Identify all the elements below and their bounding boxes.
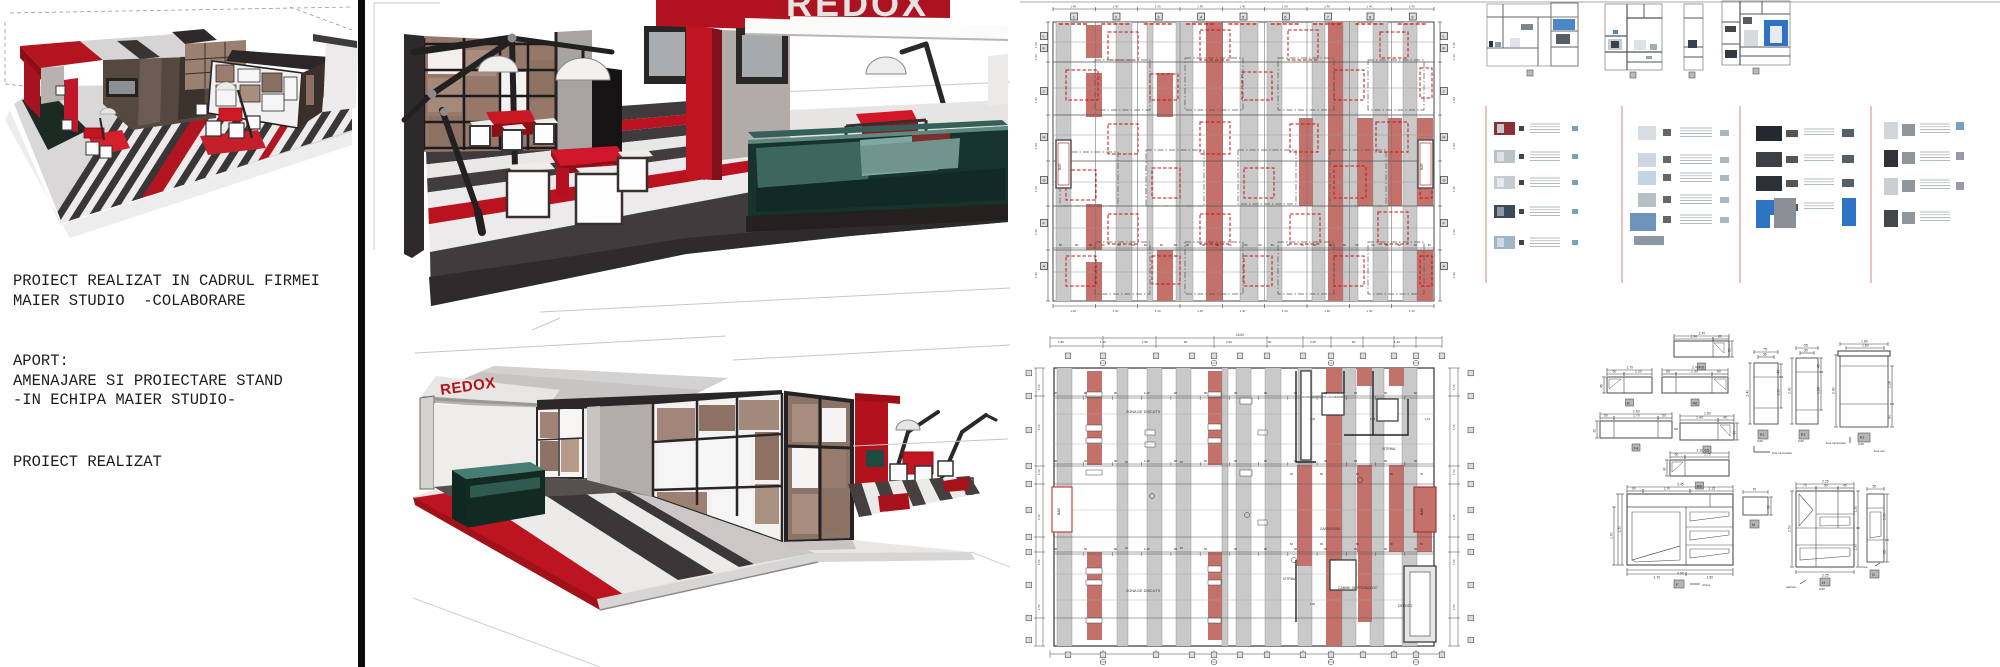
svg-text:1.30: 1.30 <box>1854 544 1858 551</box>
svg-text:1.50: 1.50 <box>1452 604 1456 610</box>
svg-text:1.20: 1.20 <box>1144 459 1150 463</box>
svg-text:30: 30 <box>1234 547 1238 551</box>
svg-text:F4: F4 <box>1634 446 1639 451</box>
svg-text:1.50: 1.50 <box>1058 340 1064 344</box>
svg-text:30: 30 <box>1054 459 1058 463</box>
svg-text:90: 90 <box>1202 243 1206 247</box>
svg-text:60: 60 <box>1089 243 1093 247</box>
svg-text:30: 30 <box>1324 547 1328 551</box>
svg-text:1.15: 1.15 <box>1709 487 1716 491</box>
svg-text:BAR: BAR <box>1420 507 1424 515</box>
svg-text:1.50: 1.50 <box>1034 143 1038 149</box>
svg-text:1.50: 1.50 <box>1452 42 1456 48</box>
svg-text:1.10: 1.10 <box>1394 340 1400 344</box>
svg-text:1.28: 1.28 <box>1888 381 1892 388</box>
svg-text:30: 30 <box>1804 349 1808 353</box>
svg-text:60: 60 <box>1313 243 1317 247</box>
svg-text:70: 70 <box>1753 488 1757 492</box>
svg-text:50: 50 <box>1662 414 1666 418</box>
svg-text:1.50: 1.50 <box>1034 54 1038 60</box>
svg-text:1.40: 1.40 <box>1324 309 1330 313</box>
svg-text:1.40: 1.40 <box>1367 5 1373 9</box>
svg-text:1.50: 1.50 <box>1452 186 1456 192</box>
svg-text:GARDEROBA: GARDEROBA <box>1320 527 1341 531</box>
svg-text:60: 60 <box>1144 243 1148 247</box>
svg-text:vitrina: vitrina <box>1860 565 1868 569</box>
svg-text:VITRINA: VITRINA <box>1283 577 1297 581</box>
svg-text:50: 50 <box>1873 485 1877 489</box>
svg-text:1.50: 1.50 <box>1037 469 1041 475</box>
svg-text:90: 90 <box>1114 459 1118 463</box>
svg-text:1.40: 1.40 <box>1409 5 1415 9</box>
svg-text:60: 60 <box>1354 459 1358 463</box>
svg-text:60: 60 <box>1717 370 1721 374</box>
svg-text:1.50: 1.50 <box>1037 424 1041 430</box>
svg-text:1.40: 1.40 <box>1113 309 1119 313</box>
svg-text:1.50: 1.50 <box>1452 229 1456 235</box>
svg-text:50: 50 <box>1733 431 1737 435</box>
svg-text:1.60: 1.60 <box>1883 513 1887 520</box>
svg-text:1.50: 1.50 <box>1452 143 1456 149</box>
svg-text:linia luminoasa: linia luminoasa <box>1772 451 1792 455</box>
svg-text:1.70: 1.70 <box>1627 366 1634 370</box>
svg-text:1.50: 1.50 <box>1034 186 1038 192</box>
svg-text:1.50: 1.50 <box>1452 384 1456 390</box>
svg-text:0.00: 0.00 <box>1858 442 1864 446</box>
svg-text:90: 90 <box>1384 547 1388 551</box>
svg-text:60: 60 <box>1059 243 1063 247</box>
svg-text:J: J <box>1043 89 1045 94</box>
svg-text:1.50: 1.50 <box>1034 229 1038 235</box>
svg-text:50: 50 <box>1675 453 1679 457</box>
svg-text:1.50: 1.50 <box>1452 469 1456 475</box>
svg-text:80: 80 <box>1718 335 1722 339</box>
svg-text:1.40: 1.40 <box>1197 309 1203 313</box>
svg-text:1.40: 1.40 <box>1070 309 1076 313</box>
svg-text:ZONA DE DISCUTII: ZONA DE DISCUTII <box>1126 589 1160 593</box>
svg-text:90: 90 <box>1114 391 1118 395</box>
svg-text:1.28: 1.28 <box>1817 387 1821 394</box>
svg-text:70: 70 <box>1803 484 1807 488</box>
svg-text:30: 30 <box>1054 391 1058 395</box>
svg-text:60: 60 <box>1294 547 1298 551</box>
svg-text:1.50: 1.50 <box>1034 42 1038 48</box>
svg-text:50: 50 <box>1666 370 1670 374</box>
svg-text:40: 40 <box>1663 467 1667 471</box>
svg-text:1.90: 1.90 <box>1704 412 1711 416</box>
svg-text:55: 55 <box>1804 344 1808 348</box>
svg-text:90: 90 <box>1075 243 1079 247</box>
svg-text:H: H <box>1043 135 1046 140</box>
svg-text:30: 30 <box>1234 459 1238 463</box>
svg-text:90: 90 <box>1371 243 1375 247</box>
svg-text:BAR: BAR <box>1057 507 1061 515</box>
svg-text:1.70: 1.70 <box>1654 576 1661 580</box>
svg-text:50: 50 <box>1613 370 1617 374</box>
svg-text:35: 35 <box>1763 353 1767 357</box>
svg-text:30: 30 <box>1324 459 1328 463</box>
svg-text:K: K <box>1443 46 1446 51</box>
svg-text:1.50: 1.50 <box>1037 604 1041 610</box>
svg-text:60: 60 <box>1186 243 1190 247</box>
svg-text:60: 60 <box>1216 243 1220 247</box>
svg-text:1.70: 1.70 <box>1664 487 1671 491</box>
svg-text:60: 60 <box>1354 391 1358 395</box>
svg-text:60: 60 <box>1228 243 1232 247</box>
svg-text:0.00: 0.00 <box>1798 439 1804 443</box>
svg-text:90: 90 <box>1329 243 1333 247</box>
svg-text:2.10: 2.10 <box>1697 449 1704 453</box>
svg-text:60: 60 <box>1174 459 1178 463</box>
svg-text:60: 60 <box>1101 243 1105 247</box>
svg-text:30: 30 <box>1054 547 1058 551</box>
svg-text:1.70: 1.70 <box>1633 414 1640 418</box>
svg-text:1.90: 1.90 <box>1610 532 1614 539</box>
svg-text:linia luminoasa: linia luminoasa <box>1826 441 1846 445</box>
svg-text:60: 60 <box>1398 243 1402 247</box>
svg-text:linia lum.: linia lum. <box>1874 449 1886 453</box>
svg-text:1.40: 1.40 <box>1367 309 1373 313</box>
svg-text:vitrina: vitrina <box>1702 583 1710 587</box>
svg-text:45: 45 <box>1723 416 1727 420</box>
svg-text:75: 75 <box>1763 348 1767 352</box>
svg-text:1.40: 1.40 <box>1240 5 1246 9</box>
svg-text:90: 90 <box>1264 547 1268 551</box>
svg-text:1.50: 1.50 <box>1707 576 1714 580</box>
svg-text:60: 60 <box>1294 459 1298 463</box>
svg-text:1.20: 1.20 <box>1777 389 1781 396</box>
svg-text:60: 60 <box>1414 391 1418 395</box>
svg-text:3.50: 3.50 <box>1677 572 1684 576</box>
svg-text:A: A <box>1043 264 1046 269</box>
svg-text:B2: B2 <box>1697 484 1703 489</box>
svg-text:1.50: 1.50 <box>1142 340 1148 344</box>
svg-text:1.50: 1.50 <box>1452 272 1456 278</box>
svg-text:1.40: 1.40 <box>1324 5 1330 9</box>
svg-text:60: 60 <box>1301 243 1305 247</box>
svg-text:1.50: 1.50 <box>1452 559 1456 565</box>
svg-text:60: 60 <box>1414 547 1418 551</box>
svg-text:60: 60 <box>1271 243 1275 247</box>
svg-text:2.20: 2.20 <box>1310 340 1316 344</box>
svg-text:60: 60 <box>1131 243 1135 247</box>
svg-text:COAFOR/STILIST+ACCESORII: COAFOR/STILIST+ACCESORII <box>1302 395 1345 399</box>
svg-text:2.20: 2.20 <box>1226 340 1232 344</box>
svg-text:1.50: 1.50 <box>1034 97 1038 103</box>
svg-text:90: 90 <box>1264 391 1268 395</box>
svg-text:60: 60 <box>1888 415 1892 419</box>
svg-text:1.10: 1.10 <box>1425 417 1431 421</box>
svg-text:K: K <box>1043 46 1046 51</box>
svg-text:1.20: 1.20 <box>1635 370 1642 374</box>
svg-text:2.48: 2.48 <box>1370 417 1376 421</box>
svg-text:BAR: BAR <box>1420 163 1424 170</box>
svg-text:90: 90 <box>1287 243 1291 247</box>
svg-text:PJ: PJ <box>1801 433 1805 437</box>
svg-text:60: 60 <box>1428 243 1432 247</box>
svg-text:90: 90 <box>1824 484 1828 488</box>
svg-text:1.40: 1.40 <box>1282 309 1288 313</box>
svg-text:H: H <box>1443 135 1446 140</box>
svg-text:CABINE DE PROBA/DOC: CABINE DE PROBA/DOC <box>1338 586 1378 590</box>
svg-text:45: 45 <box>1777 370 1781 374</box>
svg-text:1.20: 1.20 <box>1854 506 1858 513</box>
svg-text:2.70: 2.70 <box>1699 332 1706 336</box>
svg-text:1.40: 1.40 <box>1070 5 1076 9</box>
svg-text:30: 30 <box>1234 391 1238 395</box>
svg-text:50: 50 <box>1604 414 1608 418</box>
svg-text:90: 90 <box>1244 243 1248 247</box>
svg-text:1.40: 1.40 <box>1155 309 1161 313</box>
svg-text:60: 60 <box>1354 547 1358 551</box>
svg-text:1.50: 1.50 <box>1452 424 1456 430</box>
svg-text:60: 60 <box>1385 243 1389 247</box>
svg-text:60: 60 <box>1343 243 1347 247</box>
svg-text:A6: A6 <box>1693 401 1699 406</box>
svg-text:60: 60 <box>1414 459 1418 463</box>
svg-text:J: J <box>1443 89 1445 94</box>
svg-text:60: 60 <box>1355 243 1359 247</box>
svg-text:1.50: 1.50 <box>1452 54 1456 60</box>
svg-text:90: 90 <box>1114 547 1118 551</box>
svg-text:50: 50 <box>1728 348 1732 352</box>
svg-text:1.50: 1.50 <box>1452 514 1456 520</box>
svg-text:G: G <box>1872 573 1875 577</box>
svg-text:60: 60 <box>1084 459 1088 463</box>
svg-text:VITRINA: VITRINA <box>1382 447 1396 451</box>
svg-text:60: 60 <box>1174 547 1178 551</box>
svg-text:45: 45 <box>1843 484 1847 488</box>
svg-text:1.75: 1.75 <box>1704 453 1711 457</box>
svg-text:60: 60 <box>1632 487 1636 491</box>
svg-text:1.40: 1.40 <box>1113 5 1119 9</box>
svg-text:60: 60 <box>1204 459 1208 463</box>
svg-text:60: 60 <box>1174 391 1178 395</box>
svg-text:1.50: 1.50 <box>1862 344 1869 348</box>
svg-text:PJ: PJ <box>1860 436 1864 440</box>
svg-text:3.45: 3.45 <box>1677 483 1684 487</box>
svg-text:90: 90 <box>1117 243 1121 247</box>
svg-text:14.00: 14.00 <box>1236 333 1244 337</box>
svg-text:1.50: 1.50 <box>1037 559 1041 565</box>
svg-text:90: 90 <box>1384 459 1388 463</box>
svg-text:1.30: 1.30 <box>1691 370 1698 374</box>
svg-text:60: 60 <box>1084 391 1088 395</box>
svg-text:90: 90 <box>1160 243 1164 247</box>
svg-text:1.40: 1.40 <box>1155 5 1161 9</box>
svg-text:2.40: 2.40 <box>1788 387 1792 394</box>
svg-text:60: 60 <box>1258 243 1262 247</box>
svg-text:1.40: 1.40 <box>1696 416 1703 420</box>
svg-text:45: 45 <box>1817 364 1821 368</box>
svg-text:60: 60 <box>1084 547 1088 551</box>
svg-text:0.00: 0.00 <box>1819 587 1825 591</box>
svg-text:60: 60 <box>1204 547 1208 551</box>
svg-text:G: G <box>1043 178 1046 183</box>
svg-text:B: B <box>1627 401 1630 406</box>
svg-text:30: 30 <box>1324 391 1328 395</box>
svg-text:1.20: 1.20 <box>1310 602 1316 606</box>
svg-text:1.20: 1.20 <box>1144 547 1150 551</box>
svg-text:1.40: 1.40 <box>1409 309 1415 313</box>
svg-text:1.50: 1.50 <box>1037 514 1041 520</box>
svg-text:G: G <box>1443 178 1446 183</box>
svg-text:1.40: 1.40 <box>1282 5 1288 9</box>
svg-text:2.40: 2.40 <box>1746 390 1750 397</box>
svg-text:45: 45 <box>1600 384 1604 388</box>
svg-text:50: 50 <box>1593 429 1597 433</box>
svg-text:2.50: 2.50 <box>1788 525 1792 532</box>
svg-text:1.40: 1.40 <box>1240 309 1246 313</box>
svg-text:H: H <box>1822 580 1825 585</box>
svg-text:1.10: 1.10 <box>1100 340 1106 344</box>
svg-text:60: 60 <box>1268 340 1272 344</box>
svg-text:A: A <box>1443 264 1446 269</box>
svg-text:1.50: 1.50 <box>1034 272 1038 278</box>
svg-text:PJ: PJ <box>1760 433 1764 437</box>
svg-text:BAR: BAR <box>1058 163 1062 170</box>
svg-text:ZONA DE DISCUTII: ZONA DE DISCUTII <box>1126 410 1160 414</box>
svg-text:60: 60 <box>1204 391 1208 395</box>
svg-text:M: M <box>1752 523 1755 527</box>
svg-text:1.40: 1.40 <box>1197 5 1203 9</box>
svg-text:1.50: 1.50 <box>1037 384 1041 390</box>
svg-text:1.90: 1.90 <box>1691 335 1698 339</box>
svg-text:90: 90 <box>1264 459 1268 463</box>
svg-text:90: 90 <box>1384 391 1388 395</box>
svg-text:90: 90 <box>1184 340 1188 344</box>
svg-text:50: 50 <box>1767 505 1771 509</box>
svg-text:0.00: 0.00 <box>1757 439 1763 443</box>
svg-text:1.50: 1.50 <box>1452 97 1456 103</box>
svg-text:2.40: 2.40 <box>1832 387 1836 394</box>
svg-text:90: 90 <box>1414 243 1418 247</box>
svg-text:2.25: 2.25 <box>1822 574 1829 578</box>
svg-text:60: 60 <box>1294 391 1298 395</box>
svg-text:55: 55 <box>1883 550 1887 554</box>
svg-text:oglinda: oglinda <box>1786 585 1796 589</box>
svg-text:1.20: 1.20 <box>1144 391 1150 395</box>
svg-text:DEPOZIT: DEPOZIT <box>1398 604 1413 608</box>
svg-text:F8: F8 <box>1699 365 1704 370</box>
svg-text:60: 60 <box>1174 243 1178 247</box>
svg-text:60: 60 <box>1352 340 1356 344</box>
svg-text:1.20: 1.20 <box>1310 417 1316 421</box>
